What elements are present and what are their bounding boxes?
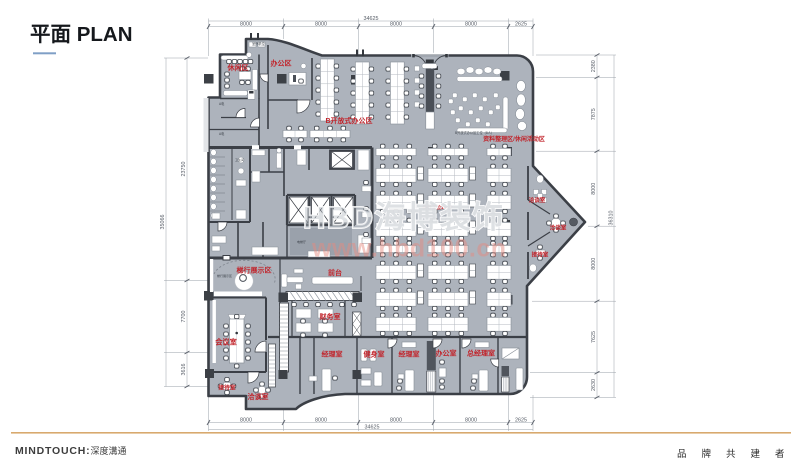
svg-text:2625: 2625 — [515, 417, 527, 423]
svg-text:8000: 8000 — [591, 258, 597, 270]
svg-text:总经理室: 总经理室 — [467, 349, 495, 358]
svg-text:8000: 8000 — [465, 417, 477, 423]
svg-text:B开放式办公区: B开放式办公区 — [325, 116, 372, 125]
svg-text:8000: 8000 — [465, 21, 477, 27]
svg-text:34625: 34625 — [364, 16, 379, 22]
svg-text:室外机位: 室外机位 — [252, 41, 266, 46]
svg-text:7625: 7625 — [591, 331, 597, 343]
svg-text:2630: 2630 — [591, 379, 597, 391]
svg-text:平面 PLAN: 平面 PLAN — [30, 23, 133, 46]
svg-text:健身室: 健身室 — [364, 350, 385, 359]
svg-text:7875: 7875 — [591, 108, 597, 120]
svg-text:23750: 23750 — [181, 162, 187, 177]
svg-text:品牌共建者: 品牌共建者 — [677, 448, 800, 460]
svg-text:A电: A电 — [219, 131, 225, 136]
svg-text:经理室: 经理室 — [322, 350, 343, 359]
svg-text:电梯厅: 电梯厅 — [297, 239, 306, 244]
svg-text:前台: 前台 — [328, 268, 342, 277]
svg-text:2625: 2625 — [515, 21, 527, 27]
svg-text:接待室: 接待室 — [218, 384, 236, 392]
svg-text:MINDTOUCH:深度溝通: MINDTOUCH:深度溝通 — [15, 445, 126, 457]
svg-text:梯行展示区: 梯行展示区 — [217, 273, 232, 278]
svg-text:HBD海博装饰: HBD海博装饰 — [303, 200, 505, 235]
svg-text:8000: 8000 — [390, 21, 402, 27]
svg-text:8000: 8000 — [591, 183, 597, 195]
svg-text:7700: 7700 — [181, 311, 187, 323]
svg-text:8000: 8000 — [390, 417, 402, 423]
svg-text:梯行展示区: 梯行展示区 — [237, 266, 272, 275]
svg-text:卫生间: 卫生间 — [235, 157, 244, 162]
svg-text:会议室: 会议室 — [215, 338, 237, 347]
svg-text:洽谈室: 洽谈室 — [248, 392, 269, 401]
svg-text:资料整理区/休闲活动区: 资料整理区/休闲活动区 — [483, 135, 545, 143]
svg-text:8000: 8000 — [240, 417, 252, 423]
svg-text:办公区: 办公区 — [271, 59, 292, 68]
svg-text:2380: 2380 — [591, 60, 597, 72]
svg-text:35066: 35066 — [160, 215, 166, 230]
svg-text:8000: 8000 — [315, 417, 327, 423]
svg-text:接待室: 接待室 — [532, 251, 549, 259]
svg-text:A电: A电 — [219, 101, 225, 106]
svg-text:经理室: 经理室 — [399, 350, 420, 359]
svg-text:www.hbd100.cn: www.hbd100.cn — [311, 235, 507, 263]
svg-text:办公室: 办公室 — [436, 349, 457, 358]
svg-text:3616: 3616 — [181, 364, 187, 376]
svg-text:洽谈室: 洽谈室 — [529, 196, 546, 204]
svg-text:B开放式办公区工位（8人）: B开放式办公区工位（8人） — [455, 130, 494, 135]
svg-text:36310: 36310 — [609, 211, 615, 226]
svg-text:8000: 8000 — [240, 21, 252, 27]
svg-text:8000: 8000 — [315, 21, 327, 27]
svg-text:34625: 34625 — [365, 425, 380, 431]
svg-text:休闲区: 休闲区 — [227, 63, 249, 72]
svg-text:洽谈室: 洽谈室 — [550, 224, 567, 232]
svg-text:财务室: 财务室 — [319, 312, 341, 321]
